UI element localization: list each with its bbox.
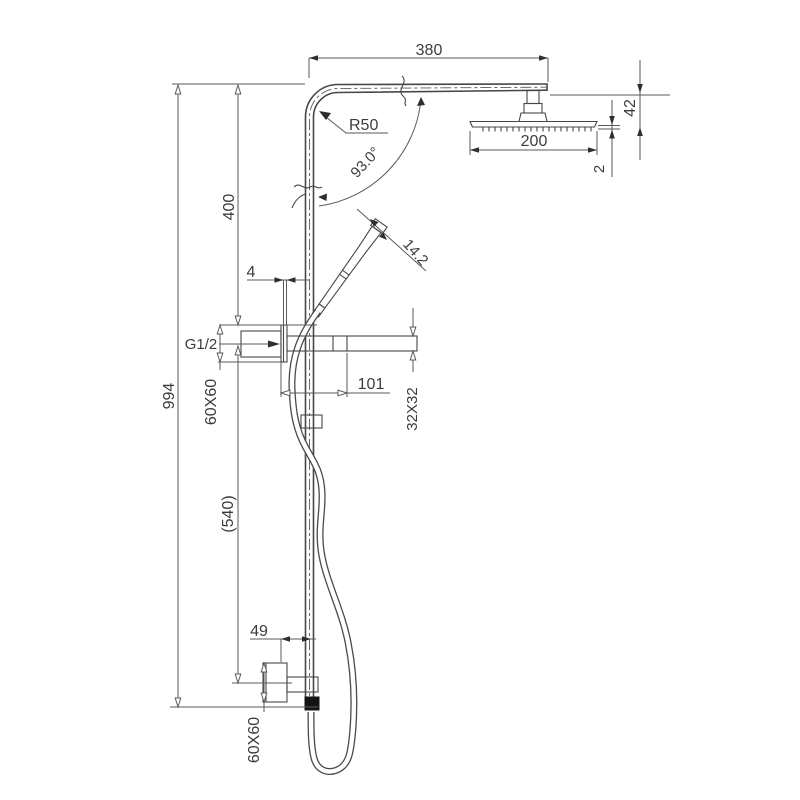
dim-arm-length: 380 (416, 42, 443, 59)
dim-head-width: 200 (521, 133, 548, 150)
wand-handle (318, 226, 382, 309)
rail-slider (301, 415, 322, 428)
technical-drawing: 380 R50 200 42 2 93.0° 14.2 400 4 G1/2 9… (0, 0, 800, 800)
head-connector-nut (524, 104, 542, 114)
hose-nut (305, 697, 319, 710)
dim-upper-bracket-size: 60X60 (203, 379, 220, 425)
shower-column-drawing: 380 R50 200 42 2 93.0° 14.2 400 4 G1/2 9… (0, 0, 800, 800)
dim-wall-offset: 101 (358, 376, 385, 393)
dim-rail-section: 32X32 (404, 387, 421, 430)
dim-inlet-thread: G1/2 (185, 336, 218, 353)
head-plate (470, 122, 597, 128)
dimension-arrows (175, 55, 643, 707)
dim-gap: 4 (247, 264, 256, 281)
lower-wall-bracket (263, 663, 319, 710)
pipe-break-squiggle (294, 185, 322, 188)
dim-bracket-span: (540) (220, 495, 237, 532)
head-nozzles (483, 128, 591, 132)
dim-head-plate-thickness: 2 (591, 165, 608, 173)
wand-seams (339, 270, 349, 279)
dim-angle: 93.0° (347, 144, 383, 181)
upper-arm-bar-seams (333, 336, 347, 351)
dim-lower-offset: 49 (250, 623, 268, 640)
head-connector-stem (527, 91, 539, 104)
dim-upper-height: 400 (221, 194, 238, 221)
upper-arm-bar (287, 336, 417, 351)
pipe-centerline (310, 87, 547, 710)
shower-hose (292, 311, 354, 772)
dim-head-drop: 42 (622, 99, 639, 117)
pipe-break-arc (292, 194, 306, 208)
rain-shower-head (470, 91, 597, 132)
g12-leader-arrow (268, 341, 280, 348)
dim-lower-bracket-size: 60X60 (246, 717, 263, 763)
dimension-lines (170, 58, 670, 712)
dim-handset-diameter: 14.2 (399, 236, 431, 269)
r50-leader-arrow (319, 111, 331, 120)
dim-corner-radius: R50 (349, 117, 378, 134)
hose-outline (292, 311, 354, 772)
head-connector-flange (519, 113, 547, 122)
pipe-inner-edge (314, 90, 548, 698)
dim-total-height: 994 (161, 383, 178, 410)
hand-shower-wand (310, 219, 387, 319)
